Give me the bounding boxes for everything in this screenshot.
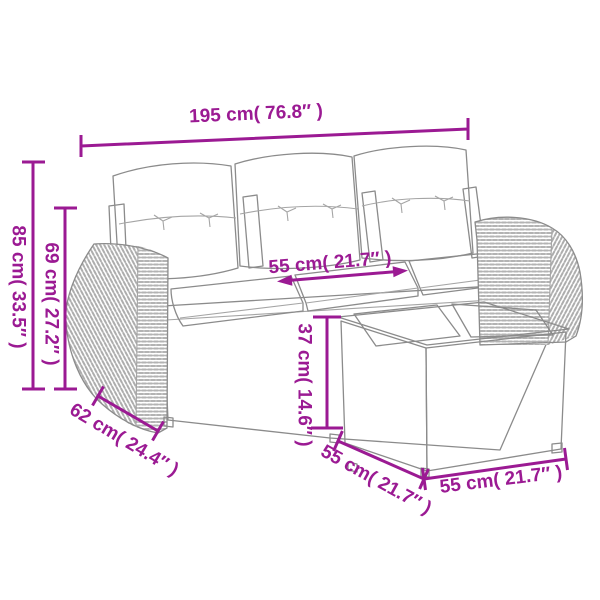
back-cushion-3 xyxy=(354,146,473,260)
right-armrest xyxy=(475,217,582,345)
glass-panel-1 xyxy=(354,305,460,346)
dim-total-width-line xyxy=(81,118,468,157)
product-dimension-diagram: 195 cm( 76.8″ ) 85 cm( 33.5″ ) 69 cm( 27… xyxy=(0,0,600,600)
dim-seat-height-line xyxy=(311,317,343,428)
dim-back-height-label: 69 cm( 27.2″ ) xyxy=(42,242,61,365)
furniture-illustration xyxy=(0,0,600,600)
dim-seat-height-label: 37 cm( 14.6″ ) xyxy=(295,323,314,446)
dim-total-height-label: 85 cm( 33.5″ ) xyxy=(9,225,28,348)
